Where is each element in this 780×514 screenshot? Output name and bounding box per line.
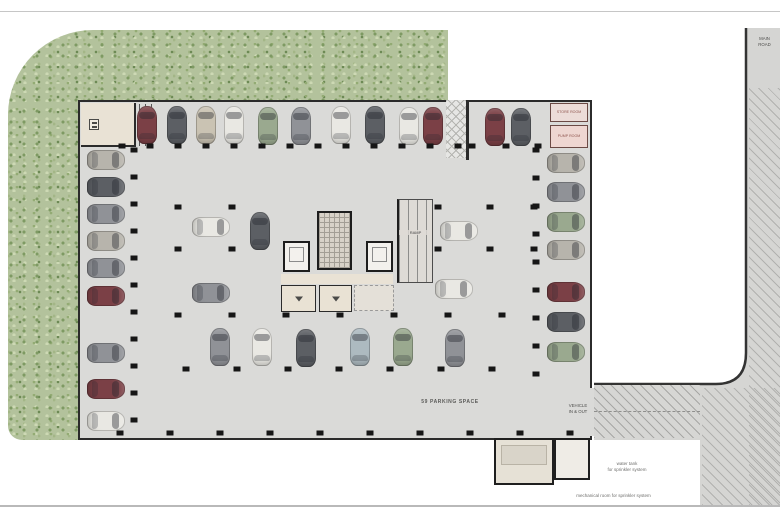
vehicle-entry-label: VEHICLE IN & OUT — [560, 403, 596, 414]
parking-floor-plan-page: { "labels": { "parking_count": "59 PARKI… — [0, 0, 780, 514]
column-tick — [131, 229, 138, 234]
driveway — [594, 385, 700, 438]
column-tick — [435, 205, 442, 210]
column-tick — [285, 367, 292, 372]
column-tick — [533, 372, 540, 377]
parked-car — [87, 411, 125, 431]
parked-car — [547, 240, 585, 260]
toilet-2 — [319, 285, 352, 312]
parked-car — [435, 279, 473, 299]
lift-1 — [283, 241, 310, 272]
column-tick — [417, 431, 424, 436]
bottom-frame-line — [0, 505, 780, 507]
column-tick — [167, 431, 174, 436]
column-tick — [131, 391, 138, 396]
parked-car — [192, 283, 230, 303]
column-tick — [533, 260, 540, 265]
column-tick — [469, 144, 476, 149]
parked-car — [331, 106, 351, 144]
parked-car — [399, 107, 419, 145]
toilet-fixture-icon — [332, 296, 340, 301]
column-tick — [391, 313, 398, 318]
column-tick — [283, 313, 290, 318]
parked-car — [350, 328, 370, 366]
parked-car — [485, 108, 505, 146]
parked-car — [87, 258, 125, 278]
column-tick — [131, 202, 138, 207]
parked-car — [296, 329, 316, 367]
column-tick — [117, 431, 124, 436]
parked-car — [250, 212, 270, 250]
column-tick — [229, 247, 236, 252]
column-tick — [455, 144, 462, 149]
column-tick — [234, 367, 241, 372]
column-tick — [131, 310, 138, 315]
parked-car — [547, 312, 585, 332]
parked-car — [87, 286, 125, 306]
pump-room-label: PUMP ROOM — [556, 134, 582, 138]
toilet-1 — [281, 285, 316, 312]
column-tick — [131, 256, 138, 261]
parked-car — [547, 282, 585, 302]
column-tick — [533, 344, 540, 349]
column-tick — [131, 337, 138, 342]
column-tick — [267, 431, 274, 436]
column-tick — [131, 175, 138, 180]
column-tick — [315, 144, 322, 149]
column-tick — [438, 367, 445, 372]
mechanical-room — [554, 438, 590, 480]
column-tick — [533, 176, 540, 181]
column-tick — [533, 288, 540, 293]
water-tank — [501, 445, 547, 465]
column-tick — [175, 205, 182, 210]
top-frame-line — [0, 11, 780, 12]
column-tick — [287, 144, 294, 149]
parked-car — [393, 328, 413, 366]
parked-car — [547, 342, 585, 362]
lift-2 — [366, 241, 393, 272]
parked-car — [210, 328, 230, 366]
column-tick — [231, 144, 238, 149]
parked-car — [224, 106, 244, 144]
column-tick — [131, 148, 138, 153]
parked-car — [423, 107, 443, 145]
road-label-line2: ROAD — [758, 42, 770, 47]
parked-car — [87, 379, 125, 399]
toilet-fixture-icon — [295, 296, 303, 301]
water-tank-line2: for sprinkler system — [607, 467, 646, 472]
water-tank-room — [494, 438, 554, 485]
parking-building — [78, 100, 592, 440]
parked-car — [547, 182, 585, 202]
parked-car — [87, 204, 125, 224]
stair-shaft — [317, 211, 352, 270]
parked-car — [511, 108, 531, 146]
parked-car — [547, 153, 585, 173]
open-lobby — [354, 285, 394, 311]
utility-icon — [89, 119, 99, 130]
column-tick — [435, 247, 442, 252]
column-tick — [533, 316, 540, 321]
parked-car — [192, 217, 230, 237]
column-tick — [175, 247, 182, 252]
vehicle-entry-line2: IN & OUT — [569, 409, 588, 414]
entry-ramp-hatch — [446, 100, 468, 158]
parked-car — [252, 328, 272, 366]
parked-car — [137, 106, 157, 144]
plot-boundary-line — [594, 28, 746, 384]
column-tick — [229, 313, 236, 318]
column-tick — [259, 144, 266, 149]
column-tick — [531, 205, 538, 210]
column-tick — [531, 247, 538, 252]
column-tick — [487, 205, 494, 210]
water-tank-label: water tank for sprinkler system — [596, 461, 658, 473]
column-tick — [371, 144, 378, 149]
column-tick — [399, 144, 406, 149]
parked-car — [87, 150, 125, 170]
parked-car — [365, 106, 385, 144]
driveway-center-line — [594, 411, 700, 412]
parked-car — [445, 329, 465, 367]
column-tick — [175, 144, 182, 149]
entrance-utility-room — [81, 103, 136, 147]
lift-2-cab — [372, 247, 387, 262]
column-tick — [387, 367, 394, 372]
mechanical-room-label: mechanical room for sprinkler system — [556, 493, 671, 499]
column-tick — [487, 247, 494, 252]
column-tick — [337, 313, 344, 318]
parked-car — [167, 106, 187, 144]
parked-car — [87, 231, 125, 251]
store-room: STORE ROOM — [550, 103, 588, 122]
parked-car — [258, 107, 278, 145]
water-tank-line1: water tank — [617, 461, 638, 466]
ramp-label: RAMP — [399, 230, 432, 235]
column-tick — [499, 313, 506, 318]
lift-lobby — [281, 274, 393, 284]
column-tick — [183, 367, 190, 372]
column-tick — [427, 144, 434, 149]
road-label: MAIN ROAD — [749, 36, 780, 47]
vehicle-entry-line1: VEHICLE — [569, 403, 587, 408]
column-tick — [317, 431, 324, 436]
column-tick — [203, 144, 210, 149]
column-tick — [217, 431, 224, 436]
parked-car — [291, 107, 311, 145]
column-tick — [533, 232, 540, 237]
column-tick — [503, 144, 510, 149]
column-tick — [131, 283, 138, 288]
column-tick — [229, 205, 236, 210]
column-tick — [489, 367, 496, 372]
column-tick — [175, 313, 182, 318]
road-hatch-corner — [702, 388, 780, 505]
parking-count-label: 59 PARKING SPACE — [395, 399, 505, 405]
column-tick — [336, 367, 343, 372]
interior-wall — [466, 100, 469, 160]
parked-car — [87, 343, 125, 363]
column-tick — [517, 431, 524, 436]
column-tick — [533, 148, 540, 153]
column-tick — [119, 144, 126, 149]
parked-car — [547, 212, 585, 232]
lift-1-cab — [289, 247, 304, 262]
column-tick — [567, 431, 574, 436]
parked-car — [87, 177, 125, 197]
pump-room: PUMP ROOM — [550, 125, 588, 148]
column-tick — [131, 418, 138, 423]
ramp-to-upper-floor: RAMP — [397, 199, 433, 283]
column-tick — [467, 431, 474, 436]
column-tick — [343, 144, 350, 149]
parked-car — [196, 106, 216, 144]
store-room-label: STORE ROOM — [556, 110, 582, 114]
parked-car — [440, 221, 478, 241]
column-tick — [445, 313, 452, 318]
column-tick — [147, 144, 154, 149]
column-tick — [131, 364, 138, 369]
column-tick — [367, 431, 374, 436]
road-label-line1: MAIN — [759, 36, 770, 41]
